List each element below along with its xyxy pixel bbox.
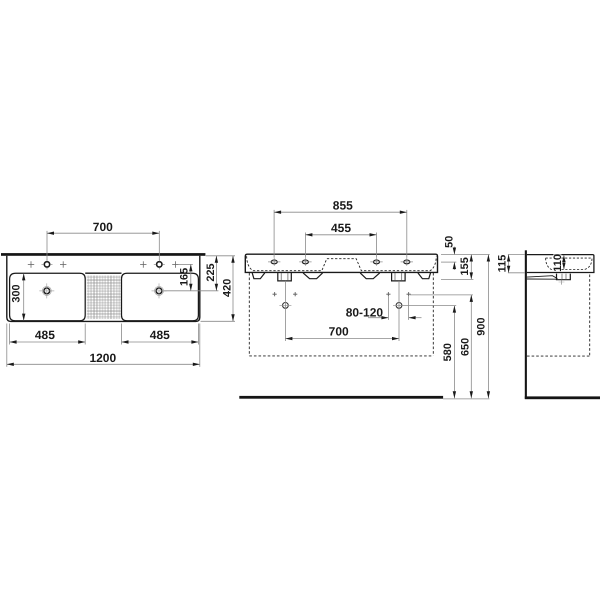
svg-text:80-120: 80-120 <box>346 306 384 320</box>
svg-text:855: 855 <box>333 199 353 213</box>
svg-text:165: 165 <box>178 268 190 286</box>
svg-text:580: 580 <box>442 343 454 361</box>
svg-text:50: 50 <box>443 236 455 248</box>
svg-text:650: 650 <box>460 338 472 356</box>
svg-text:1200: 1200 <box>89 351 116 365</box>
svg-text:300: 300 <box>11 284 23 302</box>
svg-text:485: 485 <box>35 328 55 342</box>
svg-text:900: 900 <box>475 317 487 335</box>
svg-text:155: 155 <box>459 257 471 275</box>
svg-text:420: 420 <box>221 279 233 297</box>
svg-text:700: 700 <box>329 324 349 338</box>
svg-text:455: 455 <box>331 221 351 235</box>
svg-text:115: 115 <box>496 255 508 273</box>
svg-text:700: 700 <box>93 220 113 234</box>
svg-text:225: 225 <box>205 263 217 281</box>
svg-text:110: 110 <box>552 254 564 272</box>
svg-text:485: 485 <box>150 328 170 342</box>
